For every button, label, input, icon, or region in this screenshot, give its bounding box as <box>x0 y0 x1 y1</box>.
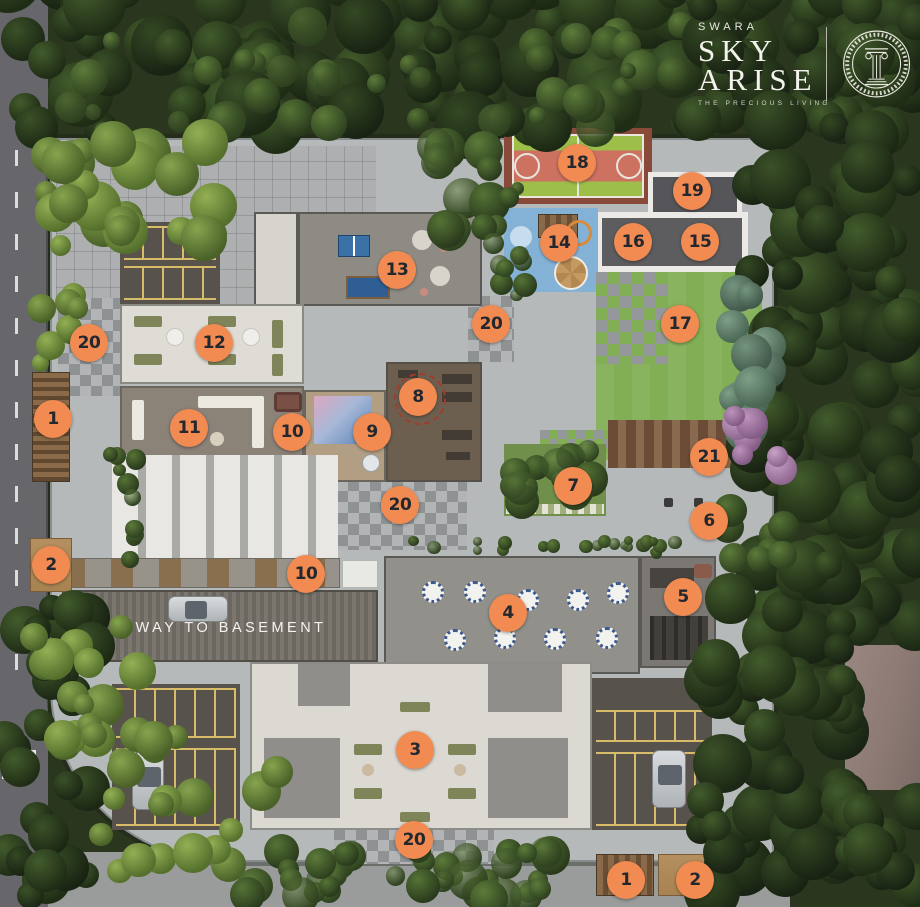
marker-15[interactable]: 15 <box>681 223 719 261</box>
marker-20[interactable]: 20 <box>472 305 510 343</box>
marker-10[interactable]: 10 <box>287 555 325 593</box>
marker-3[interactable]: 3 <box>396 731 434 769</box>
marker-18[interactable]: 18 <box>558 144 596 182</box>
marker-19[interactable]: 19 <box>673 172 711 210</box>
marker-13[interactable]: 13 <box>378 251 416 289</box>
marker-2[interactable]: 2 <box>676 861 714 899</box>
marker-1[interactable]: 1 <box>607 861 645 899</box>
marker-20[interactable]: 20 <box>381 486 419 524</box>
logo-divider <box>826 27 827 101</box>
brand-logo: SWARA SKY ARISE THE PRECIOUS LIVING <box>698 22 912 106</box>
brand-name: SWARA <box>698 21 816 33</box>
marker-14[interactable]: 14 <box>540 224 578 262</box>
marker-16[interactable]: 16 <box>614 223 652 261</box>
logo-title-line2: ARISE <box>698 65 816 94</box>
greek-column-medallion-icon <box>841 24 912 104</box>
marker-20[interactable]: 20 <box>70 324 108 362</box>
marker-4[interactable]: 4 <box>489 594 527 632</box>
marker-2[interactable]: 2 <box>32 546 70 584</box>
marker-21[interactable]: 21 <box>690 438 728 476</box>
marker-1[interactable]: 1 <box>34 400 72 438</box>
markers-layer: 1819141615132017122081111092172062105432… <box>0 0 920 907</box>
logo-title-line1: SKY <box>698 36 816 65</box>
marker-9[interactable]: 9 <box>353 413 391 451</box>
logo-tagline: THE PRECIOUS LIVING <box>698 100 816 107</box>
marker-20[interactable]: 20 <box>395 821 433 859</box>
marker-8[interactable]: 8 <box>399 378 437 416</box>
marker-12[interactable]: 12 <box>195 324 233 362</box>
marker-10[interactable]: 10 <box>273 413 311 451</box>
site-plan-canvas: WAY TO BASEMENT <box>0 0 920 907</box>
marker-6[interactable]: 6 <box>690 502 728 540</box>
marker-17[interactable]: 17 <box>661 305 699 343</box>
marker-11[interactable]: 11 <box>170 409 208 447</box>
marker-5[interactable]: 5 <box>664 578 702 616</box>
marker-7[interactable]: 7 <box>554 467 592 505</box>
